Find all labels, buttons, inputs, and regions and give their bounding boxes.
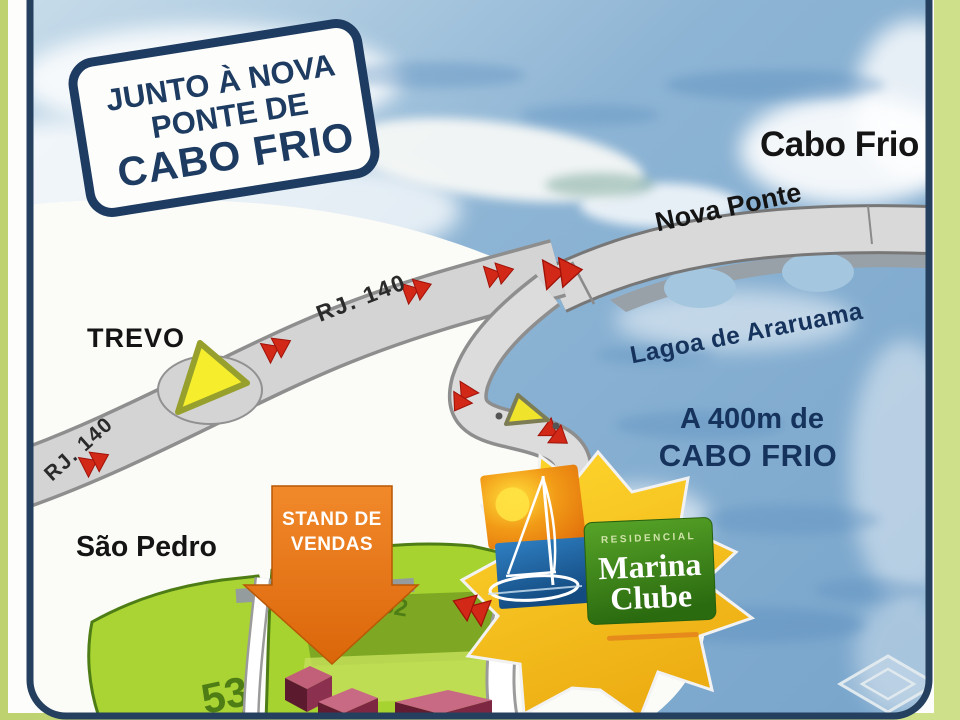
stand-text-line2: VENDAS (291, 534, 373, 555)
label-distance-line2: CABO FRIO (659, 438, 837, 473)
location-map: 53 52 (0, 0, 960, 720)
map-page: 53 52 (0, 0, 960, 720)
label-distance-line1: A 400m de (680, 403, 824, 435)
label-sao-pedro: São Pedro (76, 531, 217, 563)
label-cabo-frio-city: Cabo Frio (760, 125, 919, 164)
logo-name-line2: Clube (609, 577, 692, 617)
label-trevo: TREVO (87, 323, 185, 353)
stand-text-line1: STAND DE (282, 509, 382, 530)
